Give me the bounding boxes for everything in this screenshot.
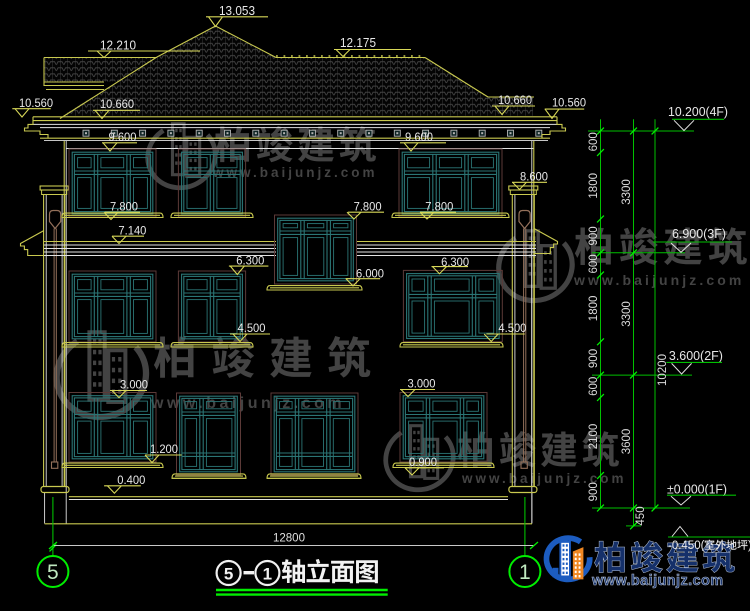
svg-text:600: 600 [588,132,600,151]
svg-text:2100: 2100 [588,424,600,450]
svg-text:12.175: 12.175 [340,36,376,50]
svg-text:4.500: 4.500 [498,321,526,335]
svg-text:900: 900 [588,482,600,501]
svg-text:900: 900 [588,226,600,245]
svg-text:10.560: 10.560 [19,96,53,110]
svg-text:5: 5 [47,561,59,584]
svg-text:10.660: 10.660 [100,97,134,111]
svg-text:3600: 3600 [621,429,633,455]
svg-text:450: 450 [635,506,647,525]
svg-text:7.800: 7.800 [110,200,138,214]
svg-text:3.600(2F): 3.600(2F) [669,349,723,363]
svg-text:±0.000(1F): ±0.000(1F) [667,483,727,497]
svg-text:-0.450(: -0.450( [668,540,705,552]
svg-text:7.800: 7.800 [354,200,382,214]
svg-text:1.200: 1.200 [150,442,178,456]
svg-text:1800: 1800 [588,173,600,199]
svg-text:3.000: 3.000 [408,377,436,391]
svg-text:www.baijunjz.com: www.baijunjz.com [461,471,627,486]
svg-text:0.900: 0.900 [409,455,437,469]
svg-text:10.560: 10.560 [552,96,586,110]
svg-text:www.baijunjz.com: www.baijunjz.com [591,573,724,589]
svg-text:10200: 10200 [657,354,669,386]
svg-text:3300: 3300 [621,179,633,205]
svg-text:1: 1 [263,565,272,584]
svg-text:9.600: 9.600 [405,130,433,144]
svg-text:8.600: 8.600 [520,170,548,184]
svg-text:3300: 3300 [621,301,633,327]
svg-text:600: 600 [588,377,600,396]
svg-text:7.800: 7.800 [425,200,453,214]
svg-text:10.200(4F): 10.200(4F) [668,105,728,119]
svg-text:13.053: 13.053 [219,4,255,18]
svg-text:4.500: 4.500 [238,321,266,335]
svg-text:3.000: 3.000 [120,378,148,392]
svg-text:9.600: 9.600 [109,130,137,144]
svg-text:7.140: 7.140 [118,224,146,238]
svg-text:600: 600 [588,254,600,273]
svg-text:0.400: 0.400 [117,473,145,487]
svg-text:1800: 1800 [588,296,600,322]
svg-text:12.210: 12.210 [100,39,136,53]
svg-text:900: 900 [588,349,600,368]
svg-text:1: 1 [519,561,531,584]
svg-text:10.660: 10.660 [498,93,532,107]
svg-text:12800: 12800 [273,533,305,545]
svg-text:5: 5 [224,565,233,584]
svg-text:6.300: 6.300 [236,254,264,268]
svg-text:6.900(3F): 6.900(3F) [672,227,726,241]
